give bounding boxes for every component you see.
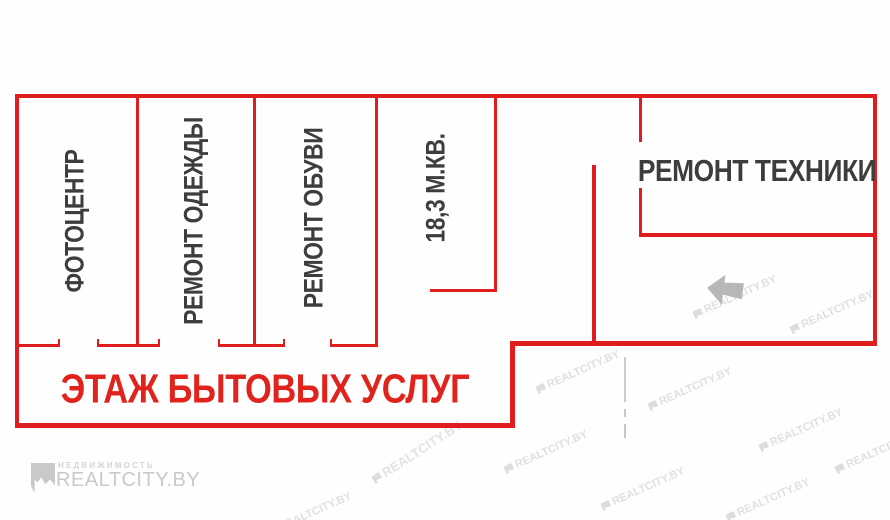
wall-front-segment: [97, 344, 160, 347]
watermark-tile: REALTCITY.BY: [599, 465, 686, 513]
wall-vestibule: [592, 165, 596, 346]
flag-icon: [725, 511, 737, 520]
wall-mid-horizontal: [510, 341, 877, 346]
flag-icon: [758, 441, 770, 453]
flag-icon: [600, 500, 612, 512]
room-label-vacant-area: 18,3 М.КВ.: [421, 133, 452, 242]
door-jamb: [218, 339, 220, 345]
watermark-tile: REALTCITY.BY: [534, 348, 621, 396]
watermark-tile: REALTCITY.BY: [646, 365, 733, 413]
watermark-tile: REALTCITY.BY: [724, 476, 811, 520]
brand-name: REALTCITY.BY: [56, 469, 200, 492]
wall-step-vertical: [510, 341, 515, 428]
watermark-text: REALTCITY.BY: [735, 476, 811, 519]
flag-icon: [371, 472, 383, 484]
flag-icon: [647, 400, 659, 412]
flag-icon: [834, 463, 846, 475]
dashed-guide-line: [624, 357, 626, 402]
room-label-clothes-repair: РЕМОНТ ОДЕЖДЫ: [179, 117, 210, 325]
room-label-appliance-repair: РЕМОНТ ТЕХНИКИ: [638, 153, 876, 189]
watermark-text: REALTCITY.BY: [513, 428, 589, 471]
door-jamb: [283, 339, 285, 345]
watermark-text: REALTCITY.BY: [545, 348, 621, 391]
wall-front-segment: [15, 344, 60, 347]
room-label-photo-center: ФОТОЦЕНТР: [60, 150, 91, 293]
brand-flag-logo-icon: [31, 463, 55, 493]
wall-tech-left-lower: [639, 188, 642, 237]
door-jamb: [97, 339, 99, 345]
wall-divider-1: [136, 94, 139, 347]
flag-icon: [535, 383, 547, 395]
watermark-tile: REALTCITY.BY: [788, 288, 875, 336]
watermark-text: REALTCITY.BY: [657, 365, 733, 408]
flag-icon: [692, 308, 704, 320]
wall-divider-3: [375, 94, 378, 347]
wall-bottom: [15, 423, 515, 428]
flag-icon: [503, 463, 515, 475]
wall-divider-2: [253, 94, 256, 347]
watermark-tile: REALTCITY.BY: [502, 428, 589, 476]
wall-top: [15, 94, 877, 98]
dashed-guide-line: [624, 409, 626, 417]
door-jamb: [330, 339, 332, 345]
floor-plan: REALTCITY.BY REALTCITY.BY REALTCITY.BY R…: [0, 0, 890, 520]
watermark-text: REALTCITY.BY: [768, 406, 844, 449]
watermark-tile: REALTCITY.BY: [266, 490, 353, 520]
watermark-tile: REALTCITY.BY: [757, 406, 844, 454]
wall-vacant-bottom: [430, 289, 497, 292]
door-jamb: [158, 339, 160, 345]
door-jamb: [58, 339, 60, 345]
flag-icon: [789, 323, 801, 335]
watermark-tile: REALTCITY.BY: [833, 428, 890, 476]
wall-front-segment: [218, 344, 285, 347]
watermark-text: REALTCITY.BY: [844, 428, 890, 471]
watermark-text: REALTCITY.BY: [799, 288, 875, 331]
watermark-text: REALTCITY.BY: [277, 490, 353, 520]
wall-tech-left-upper: [639, 94, 642, 142]
floor-title: ЭТАЖ БЫТОВЫХ УСЛУГ: [61, 366, 470, 413]
watermark-text: REALTCITY.BY: [610, 465, 686, 508]
wall-right: [873, 94, 877, 344]
dashed-guide-line: [624, 424, 626, 438]
wall-front-segment: [330, 344, 377, 347]
wall-tech-bottom: [639, 233, 877, 237]
wall-left: [15, 94, 19, 428]
wall-vacant-right: [494, 94, 497, 292]
room-label-shoe-repair: РЕМОНТ ОБУВИ: [299, 128, 330, 309]
